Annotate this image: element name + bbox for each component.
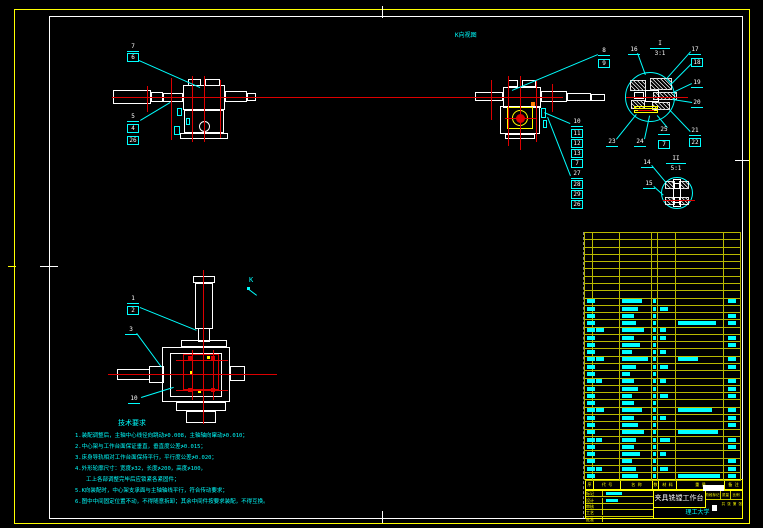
stage-label: 质量 bbox=[721, 491, 731, 499]
bom-cell-text-block bbox=[622, 408, 642, 412]
bom-cell-text-block bbox=[587, 328, 595, 332]
bom-cell-text-block bbox=[653, 357, 656, 361]
bom-cell-text-block bbox=[622, 387, 638, 391]
stage-row: 阶段标记 质量 比例 bbox=[705, 491, 742, 500]
bom-grid-line bbox=[585, 356, 741, 357]
bom-cell-text-block bbox=[728, 336, 736, 340]
cad-line bbox=[204, 76, 205, 142]
cad-line bbox=[638, 110, 654, 111]
bom-cell-text-block bbox=[653, 408, 656, 412]
title-block-signature-grid: 标记 设计 审核 工艺 批准 bbox=[586, 491, 654, 518]
title-block-label: 工艺 bbox=[586, 510, 603, 515]
cad-shape bbox=[703, 485, 724, 491]
cad-shape bbox=[543, 120, 547, 128]
cad-shape bbox=[186, 118, 190, 125]
cad-line bbox=[40, 266, 58, 267]
bom-cell-text-block bbox=[728, 343, 736, 347]
callout-balloon: 28 bbox=[571, 180, 583, 189]
bom-cell-text-block bbox=[728, 357, 736, 361]
bom-cell-text-block bbox=[653, 350, 656, 354]
cad-line bbox=[382, 6, 383, 18]
bom-cell-text-block bbox=[622, 459, 632, 463]
bom-cell-text-block bbox=[678, 357, 698, 361]
bom-cell-text-block bbox=[622, 416, 634, 420]
callout-balloon: 26 bbox=[571, 200, 583, 209]
callout-balloon: 22 bbox=[689, 138, 701, 147]
callout-balloon: 2 bbox=[127, 306, 139, 315]
detail-2-scale-label: II 5:1 bbox=[666, 154, 686, 173]
title-block-label: 设计 bbox=[586, 498, 603, 503]
bom-header-cell: 名 称 bbox=[621, 480, 653, 489]
bom-grid-line bbox=[585, 385, 741, 386]
detail-1-scale-label: I 3:1 bbox=[650, 39, 670, 58]
bom-cell-text-block bbox=[653, 474, 656, 478]
bom-grid-line bbox=[585, 480, 741, 481]
bom-cell-text-block bbox=[653, 430, 656, 434]
bom-cell-text-block bbox=[660, 379, 666, 383]
tech-note-line: 5.K向装配时，中心架支承面与主轴轴线平行，符合传动要求； bbox=[75, 486, 269, 497]
bom-cell-text-block bbox=[660, 336, 666, 340]
cad-shape bbox=[591, 94, 605, 101]
bom-grid-line bbox=[585, 407, 741, 408]
callout-balloon: 19 bbox=[691, 79, 703, 88]
bom-cell-text-block bbox=[653, 394, 656, 398]
bom-cell-text-block bbox=[622, 336, 634, 340]
bom-grid-line bbox=[592, 232, 593, 480]
bom-cell-text-block bbox=[622, 394, 632, 398]
bom-cell-text-block bbox=[596, 357, 604, 361]
title-block-stage-grid: 阶段标记 质量 比例 共 张 第 张 bbox=[705, 491, 742, 507]
bom-cell-text-block bbox=[728, 387, 736, 391]
bom-grid-line bbox=[740, 232, 741, 480]
bom-cell-text-block bbox=[660, 467, 668, 471]
stage-label: 比例 bbox=[731, 491, 741, 499]
bom-cell-text-block bbox=[622, 328, 644, 332]
bom-cell-text-block bbox=[653, 372, 656, 376]
callout-balloon: 10 bbox=[128, 395, 140, 404]
bom-cell-text-block bbox=[653, 365, 656, 369]
bom-cell-text-block bbox=[678, 474, 720, 478]
callout-balloon: 4 bbox=[127, 124, 139, 133]
bom-cell-text-block bbox=[660, 365, 668, 369]
tech-note-line: 1.装配调整后，主轴中心线径向跳动≯0.008，主轴轴向窜动≯0.010； bbox=[75, 431, 269, 442]
bom-cell-text-block bbox=[728, 299, 736, 303]
callout-balloon: 5 bbox=[127, 113, 139, 122]
cad-line bbox=[203, 270, 204, 424]
bom-cell-text-block bbox=[653, 423, 656, 427]
bom-header-cell: 备 注 bbox=[725, 480, 742, 489]
bom-grid-line bbox=[651, 232, 652, 480]
tech-notes: 技术要求 1.装配调整后，主轴中心线径向跳动≯0.008，主轴轴向窜动≯0.01… bbox=[75, 418, 269, 508]
bom-grid-line bbox=[585, 370, 741, 371]
tech-note-line: 2.中心架与工作台面保证垂直，垂直度公差≯0.015； bbox=[75, 442, 269, 453]
bom-cell-text-block bbox=[653, 387, 656, 391]
tech-note-line: 4.外形轮廓尺寸：宽度≯32，长度≯200，高度≯100， bbox=[75, 464, 269, 475]
bom-cell-text-block bbox=[587, 387, 595, 391]
bom-grid-line bbox=[584, 232, 585, 480]
cad-shape bbox=[205, 79, 220, 86]
bom-cell-text-block bbox=[587, 445, 595, 449]
cad-line bbox=[176, 390, 228, 391]
drawing-title: 夹具铣镗工作台 bbox=[653, 491, 705, 506]
bom-cell-text-block bbox=[653, 328, 656, 332]
bom-cell-text-block bbox=[622, 445, 634, 449]
bom-cell-text-block bbox=[587, 357, 595, 361]
callout-balloon: 1 bbox=[127, 295, 139, 304]
callout-balloon: 26 bbox=[127, 136, 139, 145]
bom-cell-text-block bbox=[622, 343, 640, 347]
bom-grid-line bbox=[585, 261, 741, 262]
bom-grid-line bbox=[585, 254, 741, 255]
bom-cell-text-block bbox=[678, 430, 718, 434]
bom-cell-text-block bbox=[728, 321, 736, 325]
callout-balloon: 24 bbox=[634, 138, 646, 147]
callout-balloon: 14 bbox=[641, 159, 653, 168]
cad-shape bbox=[674, 183, 680, 189]
callout-balloon: 8 bbox=[598, 47, 610, 56]
bom-grid-line bbox=[585, 443, 741, 444]
bom-cell-text-block bbox=[678, 408, 712, 412]
bom-grid-line bbox=[585, 268, 741, 269]
bom-cell-text-block bbox=[622, 357, 648, 361]
cad-line bbox=[536, 80, 537, 142]
bom-cell-text-block bbox=[622, 372, 630, 376]
cad-line bbox=[491, 80, 492, 120]
title-block-label: 批准 bbox=[586, 517, 603, 522]
bom-grid-line bbox=[585, 458, 741, 459]
tech-note-line: 3.床身导轨相对工作台面保持平行，平行度公差≯0.020； bbox=[75, 453, 269, 464]
bom-cell-text-block bbox=[728, 394, 736, 398]
bom-cell-text-block bbox=[653, 299, 656, 303]
bom-cell-text-block bbox=[622, 452, 640, 456]
bom-cell-text-block bbox=[728, 474, 736, 478]
detail-2-ratio: 5:1 bbox=[666, 164, 686, 173]
cad-shape bbox=[207, 356, 210, 359]
callout-balloon: 20 bbox=[691, 99, 703, 108]
bom-cell-text-block bbox=[622, 423, 638, 427]
callout-balloon: 7 bbox=[658, 140, 670, 149]
bom-grid-line bbox=[585, 341, 741, 342]
bom-cell-text-block bbox=[653, 467, 656, 471]
bom-cell-text-block bbox=[660, 307, 668, 311]
bom-cell-text-block bbox=[587, 452, 595, 456]
callout-balloon: 15 bbox=[643, 180, 655, 189]
stage-label: 阶段标记 bbox=[705, 491, 721, 499]
detail-1-ratio: 3:1 bbox=[650, 49, 670, 58]
cad-line bbox=[735, 160, 749, 161]
bom-cell-text-block bbox=[622, 379, 634, 383]
cad-shape bbox=[174, 126, 180, 135]
bom-cell-text-block bbox=[660, 438, 670, 442]
bom-header-cell: 序号 bbox=[586, 480, 594, 489]
title-block-label: 审核 bbox=[586, 504, 603, 509]
callout-balloon: 11 bbox=[571, 129, 583, 138]
callout-balloon: 13 bbox=[571, 149, 583, 158]
cad-line bbox=[192, 350, 193, 400]
bom-grid-line bbox=[585, 421, 741, 422]
bom-cell-text-block bbox=[587, 474, 595, 478]
bom-cell-text-block bbox=[660, 452, 666, 456]
title-block: 标记 设计 审核 工艺 批准 夹具铣镗工作台 理工大学 阶段标记 质 bbox=[585, 490, 743, 519]
bom-grid-line bbox=[619, 232, 620, 480]
bom-cell-text-block bbox=[622, 474, 638, 478]
cad-shape bbox=[508, 80, 518, 87]
bom-cell-text-block bbox=[678, 321, 716, 325]
callout-balloon: 10 bbox=[571, 118, 583, 127]
bom-grid-line bbox=[585, 239, 741, 240]
cad-shape bbox=[531, 102, 535, 106]
bom-cell-text-block bbox=[596, 408, 604, 412]
bom-cell-text-block bbox=[728, 408, 736, 412]
cad-line bbox=[176, 360, 228, 361]
callout-balloon: 27 bbox=[571, 170, 583, 179]
detail-1-name: I bbox=[650, 39, 670, 49]
bom-cell-text-block bbox=[587, 307, 595, 311]
bom-cell-text-block bbox=[660, 350, 666, 354]
bom-cell-text-block bbox=[587, 372, 595, 376]
bom-grid-line bbox=[585, 276, 741, 277]
bom-grid-line bbox=[585, 319, 741, 320]
bom-cell-text-block bbox=[653, 445, 656, 449]
cad-shape bbox=[186, 411, 216, 423]
bom-cell-text-block bbox=[587, 343, 595, 347]
k-view-label: K向视图 bbox=[455, 30, 477, 39]
bom-cell-text-block bbox=[622, 430, 644, 434]
cad-shape bbox=[176, 402, 226, 411]
bom-cell-text-block bbox=[596, 467, 602, 471]
bom-cell-text-block bbox=[728, 379, 736, 383]
bom-cell-text-block bbox=[587, 408, 595, 412]
bom-cell-text-block bbox=[622, 314, 634, 318]
cad-line bbox=[213, 350, 214, 400]
cad-shape bbox=[650, 78, 672, 90]
callout-balloon: 18 bbox=[691, 58, 703, 67]
callout-balloon: 3 bbox=[125, 326, 137, 335]
bom-grid-line bbox=[585, 312, 741, 313]
bom-cell-text-block bbox=[622, 438, 636, 442]
bom-cell-text-block bbox=[587, 299, 595, 303]
bom-cell-text-block bbox=[653, 452, 656, 456]
bom-cell-text-block bbox=[653, 401, 656, 405]
cad-shape bbox=[645, 90, 659, 102]
bom-grid-line bbox=[585, 283, 741, 284]
bom-cell-text-block bbox=[653, 336, 656, 340]
sheet-count-label: 共 张 第 张 bbox=[705, 500, 742, 508]
callout-balloon: 6 bbox=[127, 53, 139, 62]
bom-cell-text-block bbox=[653, 343, 656, 347]
bom-cell-text-block bbox=[653, 314, 656, 318]
callout-balloon: 16 bbox=[628, 46, 640, 55]
bom-grid-line bbox=[585, 247, 741, 248]
bom-cell-text-block bbox=[622, 299, 642, 303]
bom-cell-text-block bbox=[728, 416, 736, 420]
bom-cell-text-block bbox=[587, 438, 595, 442]
title-block-row: 批准 bbox=[586, 517, 653, 522]
cad-line bbox=[663, 200, 695, 201]
bom-cell-text-block bbox=[728, 365, 736, 369]
cad-line bbox=[505, 118, 536, 119]
bom-cell-text-block bbox=[587, 321, 595, 325]
k-direction-arrow-label: K bbox=[249, 276, 253, 284]
bom-header-cell: 材 料 bbox=[659, 480, 677, 489]
bom-grid-line bbox=[657, 232, 658, 480]
tech-note-line: 工上各部调整完毕后应锁紧各紧固件； bbox=[86, 475, 269, 486]
bom-grid-line bbox=[675, 232, 676, 480]
bom-cell-text-block bbox=[622, 321, 636, 325]
cad-line bbox=[147, 86, 148, 112]
cad-line bbox=[382, 511, 383, 523]
bom-cell-text-block bbox=[728, 459, 736, 463]
bom-cell-text-block bbox=[653, 321, 656, 325]
drawing-title-cell: 夹具铣镗工作台 bbox=[653, 491, 706, 508]
bom-cell-text-block bbox=[728, 423, 736, 427]
bom-cell-text-block bbox=[587, 394, 595, 398]
bom-cell-text-block bbox=[587, 365, 595, 369]
bom-grid-line bbox=[585, 298, 741, 299]
callout-balloon: 29 bbox=[571, 190, 583, 199]
bom-cell-text-block bbox=[622, 350, 632, 354]
cad-line bbox=[171, 78, 172, 140]
bom-cell-text-block bbox=[587, 350, 595, 354]
bom-cell-text-block bbox=[653, 438, 656, 442]
bom-cell-text-block bbox=[728, 438, 736, 442]
callout-balloon: 25 bbox=[658, 126, 670, 135]
bom-cell-text-block bbox=[587, 416, 595, 420]
callout-balloon: 7 bbox=[127, 43, 139, 52]
tech-note-line: 6.图中中间固定位置不动，不得随意拆卸；其余中间件按要求装配，不得互换。 bbox=[75, 497, 269, 508]
bom-cell-text-block bbox=[587, 430, 595, 434]
bom-cell-text-block bbox=[587, 379, 595, 383]
bom-grid-line bbox=[585, 232, 741, 233]
bom-cell-text-block bbox=[587, 401, 595, 405]
bom-cell-text-block bbox=[728, 445, 736, 449]
cad-shape bbox=[630, 80, 646, 91]
bom-grid-line bbox=[585, 399, 741, 400]
bom-cell-text-block bbox=[596, 438, 602, 442]
signature-text-block bbox=[606, 499, 618, 502]
bom-cell-text-block bbox=[587, 459, 595, 463]
bom-cell-text-block bbox=[622, 401, 634, 405]
bom-cell-text-block bbox=[587, 423, 595, 427]
cad-shape bbox=[634, 106, 658, 109]
bom-cell-text-block bbox=[728, 314, 736, 318]
bom-cell-text-block bbox=[596, 379, 602, 383]
cad-line bbox=[192, 76, 193, 142]
bom-grid-line bbox=[585, 290, 741, 291]
bom-cell-text-block bbox=[653, 307, 656, 311]
cad-shape bbox=[177, 108, 182, 116]
organization-name: 理工大学 bbox=[653, 507, 742, 518]
callout-balloon: 7 bbox=[571, 159, 583, 168]
bom-cell-text-block bbox=[587, 467, 595, 471]
callout-balloon: 9 bbox=[598, 59, 610, 68]
cad-line bbox=[552, 84, 553, 112]
bom-cell-text-block bbox=[622, 467, 636, 471]
cad-line bbox=[508, 76, 509, 146]
bom-cell-text-block bbox=[660, 394, 668, 398]
callout-balloon: 17 bbox=[689, 46, 701, 55]
title-block-label: 标记 bbox=[586, 491, 603, 496]
bom-cell-text-block bbox=[587, 336, 595, 340]
bom-cell-text-block bbox=[660, 328, 666, 332]
bom-cell-text-block bbox=[596, 328, 604, 332]
cad-drawing-canvas: K向视图 K I 3:1 II 5:1 技术要求 1.装配调整后，主轴中心线径向… bbox=[0, 0, 763, 528]
bom-cell-text-block bbox=[653, 459, 656, 463]
cad-shape bbox=[712, 505, 717, 511]
bom-cell-text-block bbox=[653, 379, 656, 383]
bom-cell-text-block bbox=[660, 416, 666, 420]
callout-balloon: 21 bbox=[689, 127, 701, 136]
callout-balloon: 23 bbox=[606, 138, 618, 147]
bom-cell-text-block bbox=[728, 467, 736, 471]
bom-cell-text-block bbox=[622, 307, 638, 311]
cad-shape bbox=[567, 93, 591, 101]
cad-line bbox=[220, 80, 221, 138]
cad-line bbox=[626, 97, 688, 98]
cad-line bbox=[112, 97, 563, 98]
bom-grid-line bbox=[723, 232, 724, 480]
cad-line bbox=[8, 266, 16, 267]
callout-balloon: 12 bbox=[571, 139, 583, 148]
bom-cell-text-block bbox=[587, 314, 595, 318]
signature-text-block bbox=[606, 492, 622, 495]
detail-2-name: II bbox=[666, 154, 686, 164]
bom-cell-text-block bbox=[622, 365, 636, 369]
bom-cell-text-block bbox=[653, 416, 656, 420]
bom-header-cell: 代 号 bbox=[594, 480, 621, 489]
